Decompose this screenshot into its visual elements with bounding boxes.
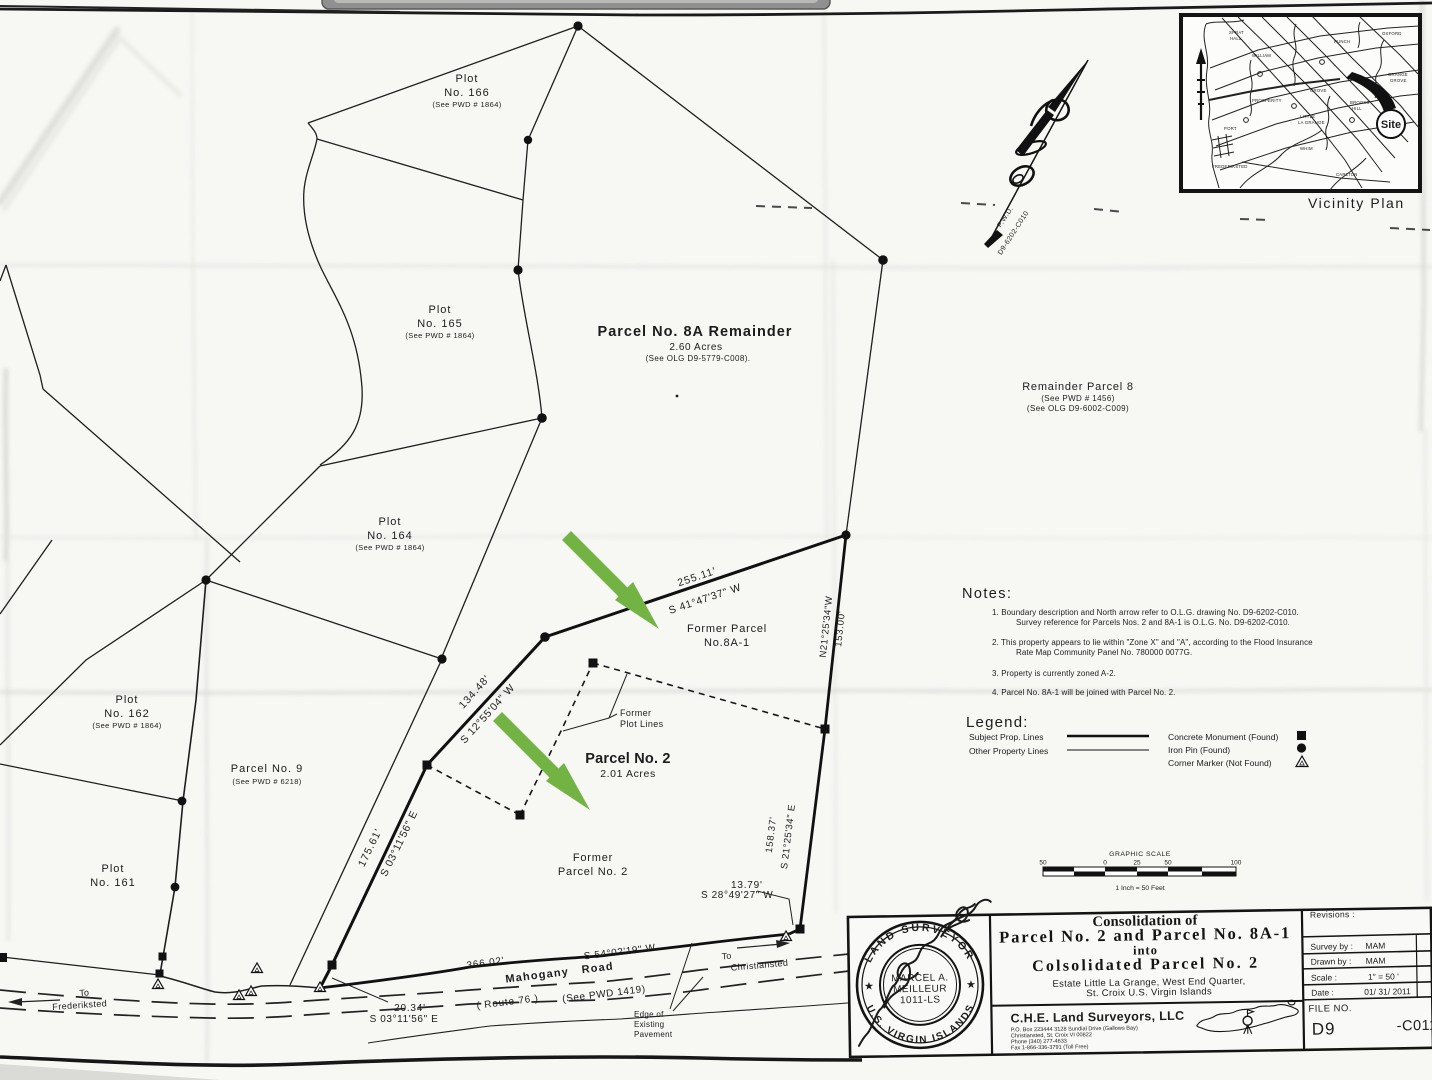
- svg-text:1. Boundary description and N: 1. Boundary description and North arrow …: [992, 608, 1299, 617]
- svg-text:Corner Marker (Not Found): Corner Marker (Not Found): [1168, 758, 1272, 768]
- svg-text:Legend:: Legend:: [966, 714, 1029, 731]
- svg-text:Vicinity Plan: Vicinity Plan: [1308, 195, 1405, 211]
- svg-text:Former Parcel: Former Parcel: [687, 623, 767, 635]
- svg-text:(See PWD # 1864): (See PWD # 1864): [355, 543, 424, 552]
- svg-text:OXFORD: OXFORD: [1382, 31, 1402, 36]
- svg-text:4. Parcel No. 8A-1 will be jo: 4. Parcel No. 8A-1 will be joined with P…: [992, 688, 1176, 697]
- svg-text:WHIM: WHIM: [1300, 146, 1313, 151]
- svg-text:-C011: -C011: [1397, 1018, 1432, 1035]
- svg-text:Subject Prop. Lines: Subject Prop. Lines: [969, 732, 1044, 742]
- svg-text:BROOKS: BROOKS: [1350, 100, 1370, 105]
- svg-text:0: 0: [1103, 860, 1107, 867]
- svg-text:No. 165: No. 165: [417, 318, 463, 330]
- svg-text:D9: D9: [1312, 1019, 1336, 1038]
- svg-text:Plot: Plot: [102, 863, 125, 875]
- svg-text:Pavement: Pavement: [634, 1030, 673, 1039]
- svg-text:FILE NO.: FILE NO.: [1308, 1003, 1352, 1015]
- svg-text:No. 166: No. 166: [444, 87, 490, 99]
- svg-text:50: 50: [1164, 860, 1172, 867]
- svg-text:No. 161: No. 161: [90, 877, 136, 889]
- svg-text:SPRAT: SPRAT: [1229, 30, 1244, 35]
- svg-text:PUNCH: PUNCH: [1334, 39, 1350, 44]
- svg-text:S 28°49'27" W: S 28°49'27" W: [701, 890, 773, 901]
- svg-text:Date :: Date :: [1311, 987, 1334, 997]
- svg-text:Parcel No. 2: Parcel No. 2: [585, 751, 670, 767]
- svg-text:GROVE: GROVE: [1390, 78, 1407, 83]
- svg-text:To: To: [721, 951, 731, 962]
- svg-text:(See PWD # 6218): (See PWD # 6218): [232, 777, 301, 786]
- svg-text:Rate Map Community Panel No. 7: Rate Map Community Panel No. 780000 0077…: [1016, 648, 1192, 657]
- svg-text:MAM: MAM: [1365, 941, 1385, 951]
- svg-text:LITTLE: LITTLE: [1300, 114, 1315, 119]
- svg-text:Plot: Plot: [456, 73, 479, 85]
- svg-text:FREDERIKSTED: FREDERIKSTED: [1212, 164, 1248, 169]
- svg-text:GRAPHIC SCALE: GRAPHIC SCALE: [1109, 851, 1171, 858]
- svg-text:HALL: HALL: [1230, 36, 1242, 41]
- svg-text:Site: Site: [1381, 119, 1401, 131]
- svg-text:100: 100: [1231, 860, 1242, 867]
- svg-text:(See PWD # 1864): (See PWD # 1864): [432, 100, 501, 109]
- svg-text:2. This property appears to l: 2. This property appears to lie within "…: [992, 638, 1313, 647]
- svg-text:Existing: Existing: [634, 1020, 664, 1029]
- svg-text:Plot Lines: Plot Lines: [620, 719, 664, 729]
- svg-text:ORANGE: ORANGE: [1388, 72, 1408, 77]
- svg-text:Survey by :: Survey by :: [1310, 941, 1353, 952]
- svg-text:Edge of: Edge of: [634, 1010, 664, 1019]
- svg-text:1" = 50 ': 1" = 50 ': [1368, 971, 1399, 981]
- svg-text:(See OLG D9-5779-C008).: (See OLG D9-5779-C008).: [646, 354, 751, 363]
- svg-text:01/ 31/ 2011: 01/ 31/ 2011: [1364, 986, 1411, 997]
- svg-text:PORT: PORT: [1224, 126, 1237, 131]
- svg-text:2.01 Acres: 2.01 Acres: [600, 768, 656, 780]
- svg-text:GROVE: GROVE: [1310, 88, 1327, 93]
- svg-text:Plot: Plot: [429, 304, 452, 316]
- svg-text:C.H.E. Land Surveyors, LLC: C.H.E. Land Surveyors, LLC: [1010, 1009, 1184, 1026]
- svg-text:Drawn by :: Drawn by :: [1311, 956, 1352, 967]
- svg-text:Fax 1-866-336-3791 (Toll Free): Fax 1-866-336-3791 (Toll Free): [1011, 1044, 1089, 1051]
- svg-text:WILLIAM: WILLIAM: [1252, 53, 1271, 58]
- svg-text:LA GRANGE: LA GRANGE: [1298, 120, 1325, 125]
- svg-text:1011-LS: 1011-LS: [900, 995, 941, 1007]
- svg-text:Notes:: Notes:: [962, 586, 1012, 602]
- svg-text:50: 50: [1039, 860, 1047, 867]
- svg-text:Former: Former: [573, 852, 613, 864]
- svg-text:1 Inch = 50 Feet: 1 Inch = 50 Feet: [1115, 885, 1164, 892]
- svg-text:HILL: HILL: [1352, 106, 1362, 111]
- svg-text:3. Property is currently zone: 3. Property is currently zoned A-2.: [992, 669, 1116, 678]
- svg-text:No. 164: No. 164: [367, 530, 413, 542]
- svg-text:(See OLG D9-6002-C009): (See OLG D9-6002-C009): [1027, 404, 1129, 413]
- svg-text:(See PWD # 1864): (See PWD # 1864): [92, 721, 161, 730]
- svg-text:Former: Former: [620, 708, 651, 718]
- svg-text:Parcel No. 8A Remainder: Parcel No. 8A Remainder: [598, 324, 793, 340]
- svg-text:Other Property Lines: Other Property Lines: [969, 746, 1048, 756]
- svg-text:(See PWD # 1864): (See PWD # 1864): [405, 331, 474, 340]
- svg-text:Colsolidated Parcel No. 2: Colsolidated Parcel No. 2: [1032, 955, 1259, 976]
- svg-text:PROSPERITY: PROSPERITY: [1252, 98, 1282, 103]
- svg-text:Remainder Parcel 8: Remainder Parcel 8: [1022, 381, 1134, 393]
- svg-text:★: ★: [966, 979, 976, 991]
- svg-text:★: ★: [864, 981, 874, 993]
- svg-text:25: 25: [1133, 860, 1141, 867]
- svg-text:Revisions :: Revisions :: [1310, 909, 1355, 920]
- svg-text:MAM: MAM: [1366, 956, 1386, 966]
- svg-text:Concrete Monument (Found): Concrete Monument (Found): [1168, 732, 1278, 742]
- svg-text:Parcel No. 2: Parcel No. 2: [558, 866, 628, 878]
- svg-text:St. Croix U.S. Virgin Islands: St. Croix U.S. Virgin Islands: [1086, 986, 1212, 999]
- svg-text:To: To: [79, 987, 89, 998]
- svg-text:No.8A-1: No.8A-1: [704, 637, 750, 649]
- svg-text:Plot: Plot: [116, 694, 139, 706]
- svg-text:No. 162: No. 162: [104, 708, 150, 720]
- svg-text:2.60 Acres: 2.60 Acres: [669, 342, 722, 353]
- svg-text:Plot: Plot: [379, 516, 402, 528]
- svg-text:Scale :: Scale :: [1311, 972, 1337, 982]
- svg-text:S 03°11'56" E: S 03°11'56" E: [370, 1014, 439, 1025]
- svg-text:Parcel No. 9: Parcel No. 9: [231, 763, 304, 775]
- svg-text:Iron Pin (Found): Iron Pin (Found): [1168, 745, 1230, 755]
- svg-text:(See PWD # 1456): (See PWD # 1456): [1041, 394, 1115, 403]
- svg-text:Survey reference for Parcels N: Survey reference for Parcels Nos. 2 and …: [1016, 618, 1290, 627]
- svg-text:20.34': 20.34': [394, 1003, 426, 1014]
- svg-text:CARLTON: CARLTON: [1336, 172, 1358, 177]
